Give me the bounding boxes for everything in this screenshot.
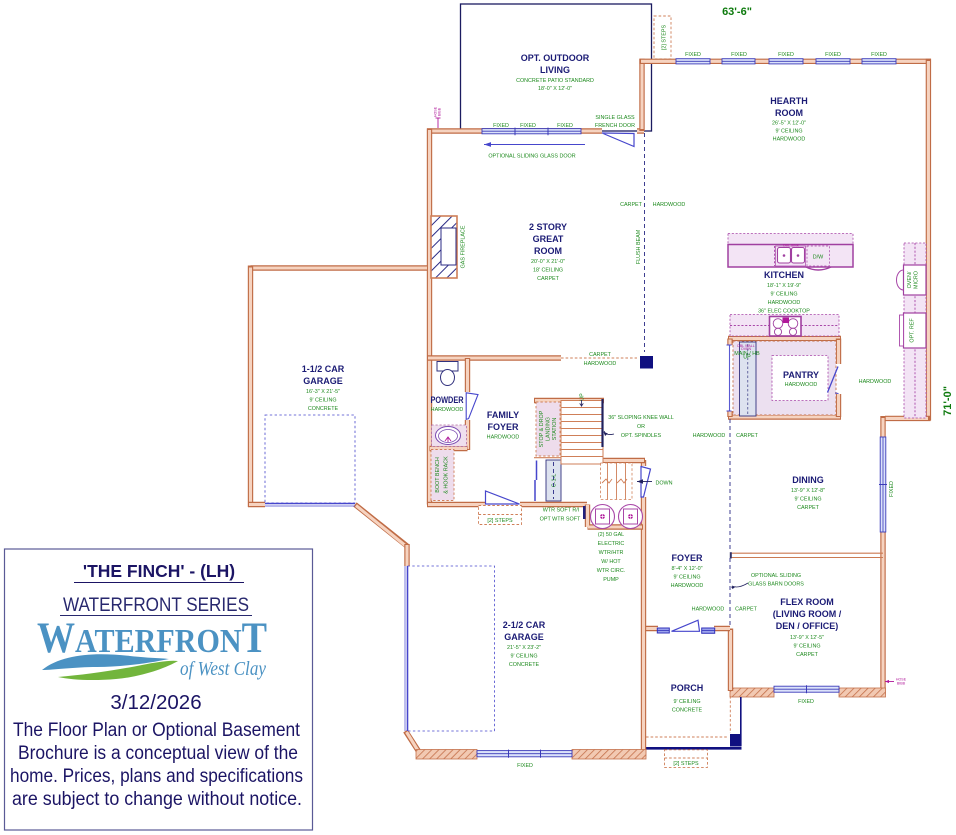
svg-text:CARPET: CARPET xyxy=(736,433,759,439)
svg-text:STATION: STATION xyxy=(552,418,558,441)
svg-text:CARPET: CARPET xyxy=(796,652,819,658)
svg-text:HARDWOOD: HARDWOOD xyxy=(487,435,520,441)
svg-text:OPTIONAL SLIDING: OPTIONAL SLIDING xyxy=(751,573,801,579)
svg-text:CONCRETE PATIO STANDARD: CONCRETE PATIO STANDARD xyxy=(516,78,594,84)
svg-text:18'-1" X 19'-9": 18'-1" X 19'-9" xyxy=(767,283,801,289)
svg-text:ROOM: ROOM xyxy=(534,246,562,256)
svg-text:DBL SINK: DBL SINK xyxy=(783,243,800,247)
svg-text:1-1/2 CAR: 1-1/2 CAR xyxy=(302,364,345,374)
svg-text:FAMILY: FAMILY xyxy=(487,410,519,420)
svg-text:13'-9" X 12'-5": 13'-9" X 12'-5" xyxy=(790,635,824,641)
svg-text:9' CEILING: 9' CEILING xyxy=(673,699,700,705)
svg-text:home. Prices, plans and specif: home. Prices, plans and specifications xyxy=(10,766,303,787)
svg-text:& HOOK RACK: & HOOK RACK xyxy=(444,456,450,494)
svg-text:HARDWOOD: HARDWOOD xyxy=(584,361,617,367)
svg-text:OVEN/: OVEN/ xyxy=(907,271,913,288)
svg-text:9' CEILING: 9' CEILING xyxy=(793,644,820,650)
svg-text:GARAGE: GARAGE xyxy=(303,376,343,386)
svg-text:FRENCH DOOR: FRENCH DOOR xyxy=(595,123,635,129)
svg-text:CARPET: CARPET xyxy=(537,276,560,282)
svg-text:9' CEILING: 9' CEILING xyxy=(309,398,336,404)
svg-text:UP: UP xyxy=(743,355,751,361)
svg-text:FIXED: FIXED xyxy=(889,481,895,497)
svg-text:[2] STEPS: [2] STEPS xyxy=(487,518,513,524)
svg-text:Brochure is a conceptual view: Brochure is a conceptual view of the xyxy=(18,743,298,764)
svg-text:36" SLOPING KNEE WALL: 36" SLOPING KNEE WALL xyxy=(608,415,674,421)
svg-text:GREAT: GREAT xyxy=(533,234,564,244)
svg-text:CONCRETE: CONCRETE xyxy=(672,708,703,714)
svg-text:'THE FINCH' - (LH): 'THE FINCH' - (LH) xyxy=(83,561,235,581)
svg-text:GARAGE: GARAGE xyxy=(504,632,544,642)
svg-text:3/12/2026: 3/12/2026 xyxy=(110,691,201,714)
svg-text:CARPET: CARPET xyxy=(620,202,643,208)
svg-text:18'-0" X 12'-0": 18'-0" X 12'-0" xyxy=(538,86,572,92)
svg-text:HARDWOOD: HARDWOOD xyxy=(693,433,726,439)
svg-text:CONCRETE: CONCRETE xyxy=(308,406,339,412)
svg-text:C-1-L: C-1-L xyxy=(552,474,558,487)
svg-text:FIXED: FIXED xyxy=(493,123,509,129)
svg-text:63'-6": 63'-6" xyxy=(722,6,752,18)
svg-text:POWDER: POWDER xyxy=(431,395,464,405)
svg-text:GAS FIREPLACE: GAS FIREPLACE xyxy=(461,225,467,268)
svg-text:CARPET: CARPET xyxy=(735,607,758,613)
svg-text:FIXED: FIXED xyxy=(517,763,533,769)
svg-text:LANDING: LANDING xyxy=(546,417,552,441)
svg-text:FIXED: FIXED xyxy=(685,52,701,58)
svg-text:2-1/2 CAR: 2-1/2 CAR xyxy=(503,620,546,630)
svg-text:DOWN: DOWN xyxy=(655,481,672,487)
svg-text:9' CEILING: 9' CEILING xyxy=(673,575,700,581)
svg-text:8'-4" X 12'-0": 8'-4" X 12'-0" xyxy=(671,566,702,572)
svg-text:16'-3" X 21'-5": 16'-3" X 21'-5" xyxy=(306,389,340,395)
svg-text:BIBB: BIBB xyxy=(897,682,906,686)
svg-text:OPT. SPINDLES: OPT. SPINDLES xyxy=(621,433,662,439)
svg-text:DEN / OFFICE): DEN / OFFICE) xyxy=(776,621,839,631)
svg-text:GLASS BARN DOORS: GLASS BARN DOORS xyxy=(748,582,804,588)
svg-text:21'-5" X 23'-2": 21'-5" X 23'-2" xyxy=(507,645,541,651)
svg-text:FIXED: FIXED xyxy=(871,52,887,58)
svg-text:of West Clay: of West Clay xyxy=(180,658,266,680)
svg-text:9' CEILING: 9' CEILING xyxy=(794,497,821,503)
svg-text:HARDWOOD: HARDWOOD xyxy=(768,300,801,306)
svg-text:HARDWOOD: HARDWOOD xyxy=(671,583,704,589)
svg-text:DINING: DINING xyxy=(792,475,824,485)
svg-text:(2) 50 GAL: (2) 50 GAL xyxy=(598,532,624,538)
svg-text:FOYER: FOYER xyxy=(671,553,703,563)
svg-text:OPT. REF: OPT. REF xyxy=(910,318,916,343)
svg-text:20'-0" X 21'-0": 20'-0" X 21'-0" xyxy=(531,259,565,265)
svg-text:HARDWOOD: HARDWOOD xyxy=(431,407,464,413)
svg-text:26'-5" X 12'-0": 26'-5" X 12'-0" xyxy=(772,121,806,127)
svg-text:HARDWOOD: HARDWOOD xyxy=(692,607,725,613)
svg-text:(LIVING ROOM /: (LIVING ROOM / xyxy=(773,609,842,619)
svg-text:FLEX ROOM: FLEX ROOM xyxy=(780,597,834,607)
svg-text:OPTIONAL SLIDING GLASS DOOR: OPTIONAL SLIDING GLASS DOOR xyxy=(488,154,575,160)
svg-text:BOOT BENCH: BOOT BENCH xyxy=(435,457,441,493)
svg-text:HARDWOOD: HARDWOOD xyxy=(773,137,806,143)
svg-text:BIBB: BIBB xyxy=(438,107,442,116)
svg-text:FIXED: FIXED xyxy=(825,52,841,58)
svg-text:W/ HOT: W/ HOT xyxy=(601,559,621,565)
svg-text:FIXED: FIXED xyxy=(778,52,794,58)
svg-text:9' CEILING: 9' CEILING xyxy=(510,654,537,660)
svg-text:The Floor Plan or Optional Bas: The Floor Plan or Optional Basement xyxy=(13,720,301,741)
svg-text:WTR SOFT R/I: WTR SOFT R/I xyxy=(543,508,579,514)
svg-text:18' CEILING: 18' CEILING xyxy=(533,268,563,274)
svg-text:FIXED: FIXED xyxy=(557,123,573,129)
svg-text:are subject to change without: are subject to change without notice. xyxy=(12,789,302,810)
svg-text:D/W: D/W xyxy=(813,255,824,261)
svg-text:LIVING: LIVING xyxy=(540,65,570,75)
svg-text:HARDWOOD: HARDWOOD xyxy=(653,202,686,208)
svg-text:STOP & DROP: STOP & DROP xyxy=(539,410,545,447)
svg-text:SINGLE GLASS: SINGLE GLASS xyxy=(595,115,635,121)
svg-text:FIXED: FIXED xyxy=(520,123,536,129)
svg-text:ROOM: ROOM xyxy=(775,108,803,118)
svg-text:WTR/HTR: WTR/HTR xyxy=(599,550,624,556)
svg-text:HEARTH: HEARTH xyxy=(770,96,808,106)
svg-text:ELECTRIC: ELECTRIC xyxy=(598,541,625,547)
svg-text:[2] STEPS: [2] STEPS xyxy=(673,761,699,767)
svg-text:WTR CIRC.: WTR CIRC. xyxy=(597,568,625,574)
svg-text:WATERFRONT SERIES: WATERFRONT SERIES xyxy=(63,595,249,616)
svg-text:HARDWOOD: HARDWOOD xyxy=(859,379,892,385)
svg-text:OPT WTR SOFT: OPT WTR SOFT xyxy=(540,517,581,523)
svg-text:36" ELEC COOKTOP: 36" ELEC COOKTOP xyxy=(758,309,810,315)
svg-text:9' CEILING: 9' CEILING xyxy=(775,129,802,135)
svg-text:CARPET: CARPET xyxy=(589,352,612,358)
svg-text:2 STORY: 2 STORY xyxy=(529,222,567,232)
svg-text:CARPET: CARPET xyxy=(797,505,820,511)
svg-text:HARDWOOD: HARDWOOD xyxy=(785,382,818,388)
svg-text:MICRO: MICRO xyxy=(914,271,920,289)
svg-text:13'-9" X 12'-8": 13'-9" X 12'-8" xyxy=(791,488,825,494)
svg-text:PANTRY: PANTRY xyxy=(783,370,819,380)
svg-text:WATERFRONT: WATERFRONT xyxy=(37,615,267,662)
svg-text:FIXED: FIXED xyxy=(731,52,747,58)
svg-text:UP: UP xyxy=(580,393,586,401)
svg-text:PORCH: PORCH xyxy=(671,683,704,693)
svg-text:PUMP: PUMP xyxy=(603,577,619,583)
svg-text:71'-0": 71'-0" xyxy=(942,386,954,416)
svg-text:FIXED: FIXED xyxy=(798,699,814,705)
svg-text:KITCHEN: KITCHEN xyxy=(764,270,804,280)
svg-text:9' CEILING: 9' CEILING xyxy=(770,292,797,298)
svg-text:FLUSH BEAM: FLUSH BEAM xyxy=(636,229,642,264)
svg-text:OR: OR xyxy=(637,424,645,430)
svg-text:OPT. OUTDOOR: OPT. OUTDOOR xyxy=(521,53,590,63)
svg-text:CONCRETE: CONCRETE xyxy=(509,662,540,668)
svg-text:FOYER: FOYER xyxy=(487,422,519,432)
svg-text:[2] STEPS: [2] STEPS xyxy=(662,25,668,51)
